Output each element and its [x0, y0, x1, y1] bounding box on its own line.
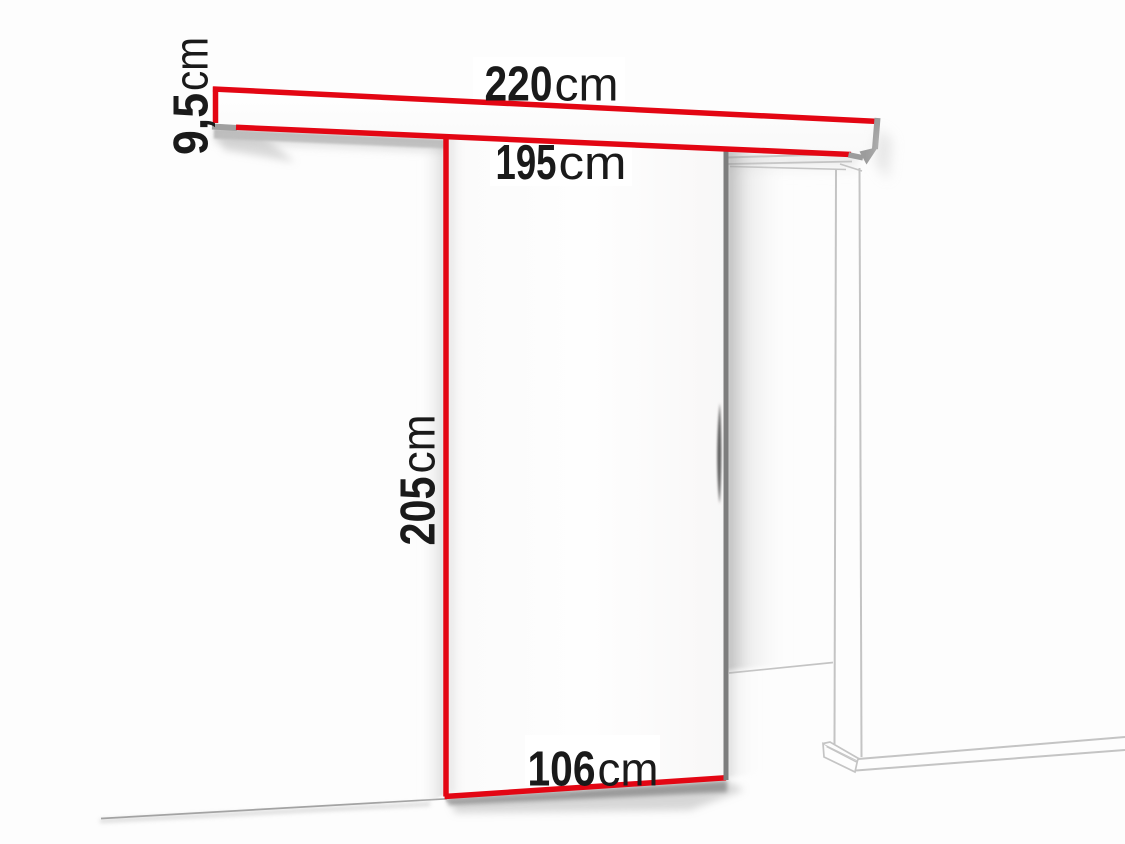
svg-text:cm: cm: [555, 58, 619, 111]
svg-text:220: 220: [485, 58, 553, 112]
svg-text:195: 195: [496, 136, 557, 190]
svg-text:106: 106: [528, 743, 596, 797]
svg-text:cm: cm: [392, 415, 445, 474]
svg-text:cm: cm: [559, 136, 627, 189]
svg-text:cm: cm: [165, 37, 218, 91]
svg-text:cm: cm: [598, 743, 659, 796]
svg-text:205: 205: [392, 477, 446, 546]
svg-text:9,5: 9,5: [165, 93, 219, 155]
